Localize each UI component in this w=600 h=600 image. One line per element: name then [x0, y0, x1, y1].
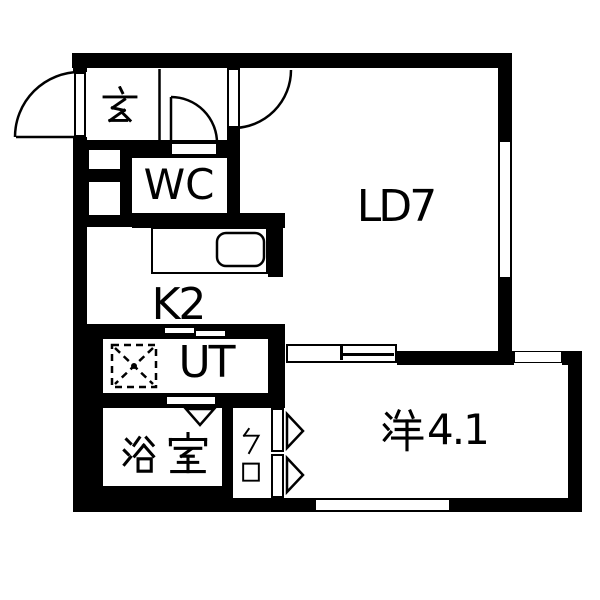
room-label-closet: クロ [237, 426, 265, 486]
floorplan: 玄 WC LD7 K2 UT 浴室 クロ 4.1 洋4.1 [0, 0, 600, 600]
sliding-door-rail [340, 353, 394, 356]
wall-pipe-space [87, 339, 103, 498]
window-western-north [514, 351, 562, 363]
wall-western-east [568, 351, 582, 512]
entrance-door-arc [15, 72, 80, 137]
room-label-western-number: 4.1 [427, 405, 488, 454]
room-label-utility: UT [168, 340, 244, 384]
wc-door-arc [171, 97, 217, 143]
kanji-glyph-室 [166, 432, 210, 476]
window-western-south [315, 499, 450, 511]
ld-door-leaf [227, 68, 240, 128]
bath-door-threshold [165, 395, 217, 406]
room-label-closet-text: クロ [251, 456, 252, 457]
wall-left-stub [73, 53, 87, 72]
room-label-genkan: 玄 [99, 86, 141, 128]
entrance-door-leaf [74, 72, 86, 137]
wall-bath-south [103, 486, 233, 498]
wall-bath-closet [222, 408, 233, 498]
wall-top [72, 53, 512, 68]
shoe-cabinet-shelf-lower [89, 182, 120, 215]
shoe-cabinet-shelf-upper [89, 150, 120, 169]
western-sliding-door [286, 344, 397, 363]
wc-door-threshold [170, 142, 218, 156]
room-label-wc-text: WC [144, 160, 215, 209]
kitchen-counter [151, 227, 268, 274]
kanji-glyph-浴 [120, 432, 164, 476]
closet-door-triangle-2 [287, 458, 303, 492]
wall-wc-south [132, 213, 285, 228]
room-label-bathroom: 浴室 [119, 432, 211, 476]
washer-pan [112, 345, 156, 387]
window-ld-east [498, 142, 512, 277]
room-label-western-kanji [380, 407, 425, 452]
kanji-glyph-ロ [237, 458, 265, 486]
room-label-ld: LD7 [338, 184, 453, 228]
room-label-kitchen-text: K2 [152, 279, 205, 330]
wall-kitchen-east [268, 213, 283, 277]
kanji-glyph-玄 [99, 86, 141, 128]
washer-pan-drain [131, 363, 137, 369]
ld-door-arc [233, 70, 291, 128]
kanji-glyph-ク [237, 427, 265, 455]
bath-door-triangle [186, 409, 214, 425]
room-label-wc: WC [133, 162, 225, 206]
room-label-western: 4.1 洋4.1 [380, 406, 488, 452]
wall-western-north [397, 351, 514, 365]
closet-door-leaf-1 [271, 408, 284, 452]
closet-door-leaf-2 [271, 454, 284, 498]
closet-door-triangle-1 [287, 414, 303, 448]
room-label-ld-text: LD7 [357, 181, 434, 232]
room-label-kitchen: K2 [138, 282, 218, 326]
wall-right-upper [498, 53, 512, 142]
kanji-glyph-洋 [380, 407, 425, 452]
room-label-utility-text: UT [178, 337, 233, 388]
